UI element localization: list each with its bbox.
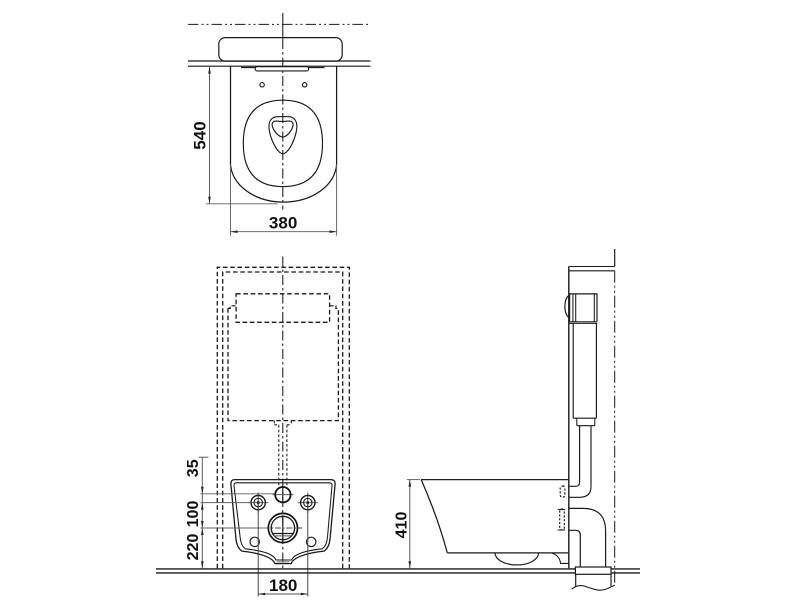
svg-text:35: 35 — [185, 459, 202, 477]
svg-text:100: 100 — [185, 501, 202, 528]
svg-text:410: 410 — [393, 512, 410, 539]
svg-text:380: 380 — [269, 214, 297, 233]
svg-text:180: 180 — [269, 576, 297, 595]
svg-text:540: 540 — [191, 121, 210, 149]
svg-text:220: 220 — [185, 534, 202, 561]
